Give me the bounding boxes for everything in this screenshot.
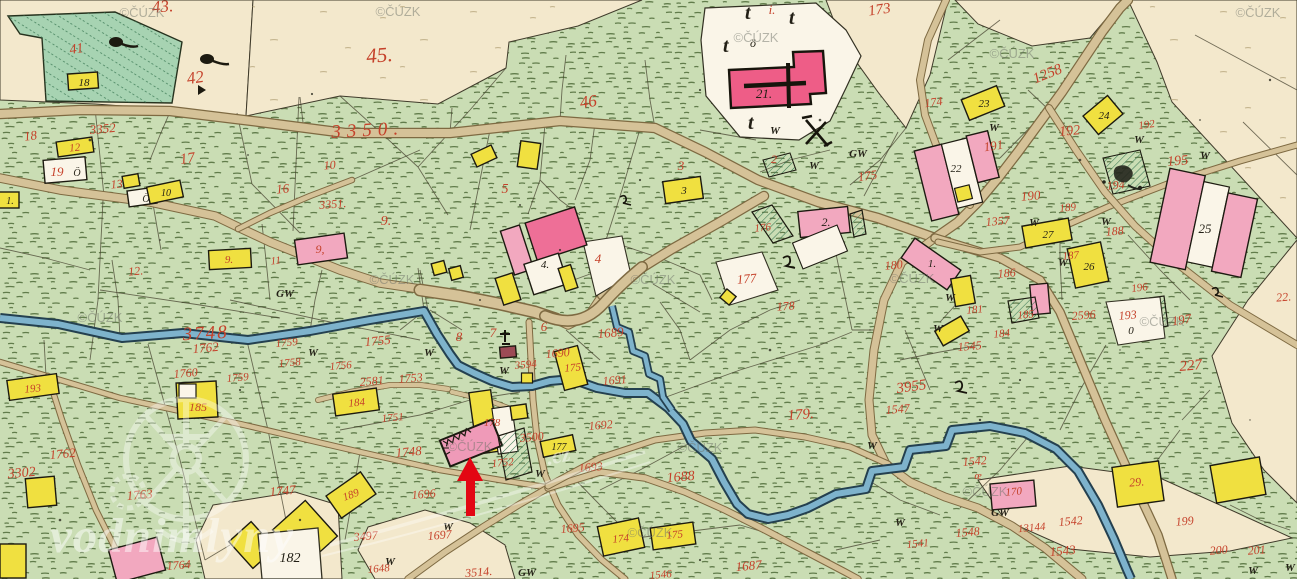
svg-text:1.: 1. <box>928 258 936 270</box>
svg-text:1747: 1747 <box>269 482 297 499</box>
svg-text:193: 193 <box>24 382 42 395</box>
svg-text:W: W <box>867 440 878 452</box>
svg-text:185: 185 <box>1017 308 1035 321</box>
svg-text:10: 10 <box>161 188 171 199</box>
svg-text:24: 24 <box>1099 110 1111 122</box>
svg-text:1689: 1689 <box>597 324 625 341</box>
svg-text:2.: 2. <box>822 215 831 229</box>
svg-text:1692: 1692 <box>588 417 613 433</box>
svg-text:3352: 3352 <box>88 120 117 137</box>
svg-text:5: 5 <box>502 182 509 197</box>
svg-text:13: 13 <box>110 177 123 192</box>
svg-text:©ČÚZK: ©ČÚZK <box>376 4 421 19</box>
svg-text:46: 46 <box>578 91 598 112</box>
svg-text:2581: 2581 <box>359 373 384 389</box>
svg-text:170: 170 <box>1005 485 1023 498</box>
svg-text:179.: 179. <box>787 406 815 424</box>
svg-text:1690: 1690 <box>545 345 570 361</box>
svg-text:i.: i. <box>769 2 776 17</box>
svg-text:11: 11 <box>270 255 281 268</box>
svg-text:181: 181 <box>966 303 983 316</box>
svg-text:10: 10 <box>323 158 336 173</box>
svg-text:9,: 9, <box>316 242 325 256</box>
svg-text:GW: GW <box>518 567 537 579</box>
svg-text:1751: 1751 <box>381 411 404 425</box>
svg-text:175: 175 <box>857 167 879 185</box>
svg-text:190: 190 <box>1020 187 1041 204</box>
svg-text:GW: GW <box>276 288 295 300</box>
svg-text:3594: 3594 <box>513 358 537 372</box>
svg-text:26: 26 <box>1084 261 1096 273</box>
svg-text:7: 7 <box>490 325 497 340</box>
svg-text:1545: 1545 <box>957 338 982 354</box>
svg-text:1357: 1357 <box>985 213 1011 229</box>
svg-text:0: 0 <box>1128 325 1134 337</box>
svg-text:8: 8 <box>456 329 463 344</box>
svg-text:©ČÚZK: ©ČÚZK <box>890 271 935 286</box>
svg-text:W: W <box>895 517 906 529</box>
svg-text:177: 177 <box>736 270 757 287</box>
svg-text:œ: œ <box>974 470 982 482</box>
svg-text:©ČÚZK: ©ČÚZK <box>1236 5 1281 20</box>
svg-text:27: 27 <box>1043 229 1055 241</box>
svg-text:W: W <box>1285 562 1296 574</box>
svg-text:3514.: 3514. <box>464 564 493 579</box>
svg-text:22.: 22. <box>1276 289 1292 304</box>
svg-text:193: 193 <box>1118 307 1137 323</box>
svg-text:4: 4 <box>595 251 602 266</box>
svg-text:W: W <box>499 365 510 377</box>
svg-text:3350.: 3350. <box>330 118 405 143</box>
svg-text:191: 191 <box>983 137 1004 155</box>
svg-text:178: 178 <box>484 417 501 429</box>
svg-text:1542: 1542 <box>962 453 987 469</box>
svg-text:3302: 3302 <box>6 465 36 482</box>
svg-text:199: 199 <box>1175 513 1194 529</box>
svg-text:1691: 1691 <box>602 372 627 388</box>
svg-text:1759: 1759 <box>275 336 298 350</box>
svg-text:227: 227 <box>1179 357 1204 375</box>
svg-text:1541: 1541 <box>906 537 929 551</box>
svg-text:1688: 1688 <box>666 469 695 486</box>
svg-text:W: W <box>989 122 1000 134</box>
svg-text:1548: 1548 <box>955 524 980 540</box>
svg-text:21.: 21. <box>756 86 772 101</box>
svg-text:186: 186 <box>997 265 1016 281</box>
svg-text:178: 178 <box>776 298 795 314</box>
svg-text:©ČÚZK: ©ČÚZK <box>78 310 123 325</box>
svg-text:22: 22 <box>951 163 963 175</box>
svg-text:3: 3 <box>680 185 687 197</box>
svg-text:200: 200 <box>1209 542 1228 558</box>
svg-text:W: W <box>308 347 319 359</box>
svg-text:23: 23 <box>979 98 991 110</box>
svg-text:184: 184 <box>993 327 1011 340</box>
svg-text:2: 2 <box>771 152 777 166</box>
svg-text:1762: 1762 <box>49 445 77 462</box>
svg-text:1753: 1753 <box>398 370 423 386</box>
svg-text:192: 192 <box>1059 123 1081 140</box>
svg-text:©ČÚZK: ©ČÚZK <box>120 5 165 20</box>
svg-text:1687: 1687 <box>735 557 763 574</box>
svg-text:13144: 13144 <box>1018 521 1047 535</box>
svg-text:192: 192 <box>1138 118 1157 132</box>
svg-text:W: W <box>1058 257 1069 269</box>
svg-text:GW: GW <box>991 507 1010 519</box>
svg-text:18: 18 <box>23 127 38 144</box>
svg-text:©ČÚZK: ©ČÚZK <box>990 46 1035 61</box>
svg-text:1696: 1696 <box>411 486 436 502</box>
svg-text:18: 18 <box>79 77 91 89</box>
svg-text:Ö: Ö <box>142 193 149 205</box>
svg-text:1759: 1759 <box>226 371 249 385</box>
svg-text:©ČÚZK: ©ČÚZK <box>734 30 779 45</box>
svg-text:©ČÚZK: ©ČÚZK <box>1140 314 1185 329</box>
svg-text:1752: 1752 <box>491 456 514 470</box>
svg-text:1546: 1546 <box>649 568 672 579</box>
svg-text:12.: 12. <box>128 263 144 278</box>
svg-text:45.: 45. <box>365 42 393 68</box>
svg-text:3748: 3748 <box>181 322 229 345</box>
svg-text:©ČÚZK: ©ČÚZK <box>370 272 415 287</box>
svg-text:1547: 1547 <box>885 401 911 417</box>
svg-text:W: W <box>1248 565 1259 577</box>
svg-text:2596: 2596 <box>1071 307 1096 323</box>
svg-text:©ČÚZK: ©ČÚZK <box>631 272 676 287</box>
svg-text:25: 25 <box>1199 221 1213 236</box>
svg-text:1.: 1. <box>6 196 14 207</box>
svg-text:W: W <box>424 347 435 359</box>
svg-text:189: 189 <box>1059 201 1077 214</box>
svg-text:vodnimlyny: vodnimlyny <box>50 508 294 563</box>
svg-text:29.: 29. <box>1129 474 1145 489</box>
svg-text:1755: 1755 <box>364 332 392 349</box>
svg-text:176: 176 <box>754 221 772 234</box>
svg-text:Ö: Ö <box>73 167 80 179</box>
svg-text:1543: 1543 <box>1049 542 1077 559</box>
svg-text:W: W <box>809 160 820 172</box>
svg-text:W: W <box>933 323 944 335</box>
svg-text:©ČÚZK: ©ČÚZK <box>628 525 673 540</box>
svg-text:195: 195 <box>1167 153 1189 170</box>
svg-text:GW: GW <box>849 148 868 160</box>
svg-text:19: 19 <box>51 164 65 179</box>
svg-text:W: W <box>385 556 396 568</box>
svg-text:9.: 9. <box>225 254 233 266</box>
svg-text:©ČÚZK: ©ČÚZK <box>963 484 1008 499</box>
svg-text:1542: 1542 <box>1058 513 1083 529</box>
svg-text:4.: 4. <box>541 259 549 271</box>
svg-text:W: W <box>535 468 546 480</box>
svg-text:©ČÚZK: ©ČÚZK <box>678 440 723 455</box>
svg-text:16: 16 <box>275 180 290 196</box>
svg-text:196: 196 <box>1131 281 1150 295</box>
svg-text:W: W <box>1200 150 1211 162</box>
svg-text:1756: 1756 <box>329 359 352 373</box>
svg-text:42: 42 <box>185 67 205 88</box>
svg-text:W: W <box>1101 216 1112 228</box>
svg-text:W: W <box>1029 217 1040 229</box>
svg-text:3500: 3500 <box>518 429 544 445</box>
svg-text:W: W <box>770 125 781 137</box>
svg-text:1695: 1695 <box>560 520 585 536</box>
svg-text:184: 184 <box>348 396 366 409</box>
svg-text:1748: 1748 <box>395 443 423 460</box>
svg-text:W: W <box>1134 134 1145 146</box>
svg-text:3351.: 3351. <box>318 196 347 212</box>
svg-text:©ČÚZK: ©ČÚZK <box>448 439 493 454</box>
svg-text:1758: 1758 <box>278 356 301 370</box>
svg-text:173: 173 <box>867 1 892 20</box>
svg-text:201: 201 <box>1247 542 1266 558</box>
svg-text:W: W <box>945 292 956 304</box>
svg-text:9.: 9. <box>381 214 392 229</box>
svg-text:12: 12 <box>69 142 82 155</box>
svg-text:3: 3 <box>677 158 685 173</box>
svg-text:41: 41 <box>69 41 85 58</box>
svg-text:1760: 1760 <box>173 365 198 381</box>
svg-text:174: 174 <box>924 94 944 110</box>
svg-text:175: 175 <box>564 361 582 374</box>
